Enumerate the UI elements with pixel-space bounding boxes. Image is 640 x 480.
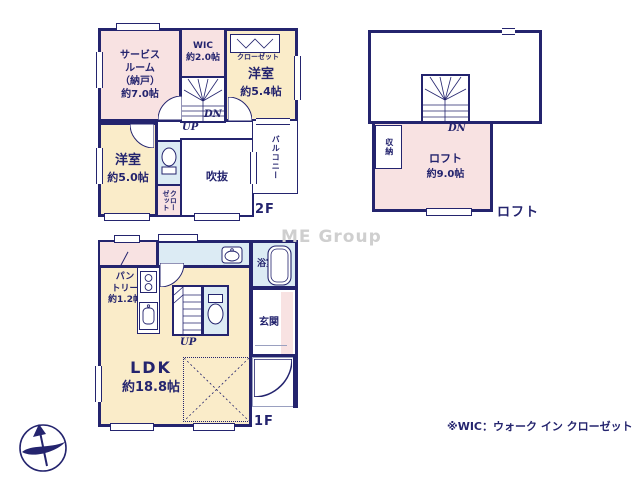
stove-icon	[140, 271, 157, 293]
bay-window	[110, 423, 154, 431]
bay-window	[158, 234, 198, 242]
room-fukinuke-label: 吹抜	[206, 170, 228, 184]
closet-2f-label: クローゼット	[162, 188, 177, 214]
balcony-label: バルコニー	[271, 135, 279, 180]
room-ldk-name: LDK	[130, 358, 172, 379]
window	[502, 28, 515, 35]
room-wic: WIC 約2.0帖	[180, 28, 226, 78]
room-yoshitsu-54-name: 洋室	[248, 67, 274, 84]
window	[95, 366, 102, 402]
bay-window	[104, 213, 150, 221]
stairs-icon	[423, 76, 468, 122]
closet-2f: クローゼット	[156, 184, 182, 217]
room-genkan: 玄関	[250, 287, 298, 357]
bathtub-icon	[267, 245, 292, 286]
floor-1-label: 1F	[254, 414, 274, 429]
stairs-icon	[174, 287, 201, 334]
porch-wall	[293, 355, 298, 408]
bay-window	[194, 213, 240, 221]
front-door-arc	[254, 359, 292, 397]
kitchen-counter	[137, 267, 160, 334]
floorplan-canvas: サービス ルーム （納戸） 約7.0帖 WIC 約2.0帖 クローゼット	[0, 0, 640, 480]
window	[294, 56, 301, 100]
closet-top-label: クローゼット	[233, 53, 283, 62]
washbasin-icon	[221, 246, 243, 264]
door-arc	[130, 124, 154, 148]
stairs-icon	[182, 78, 224, 121]
toilet-2f	[156, 140, 182, 186]
room-fukinuke: 吹抜	[180, 138, 254, 217]
room-yoshitsu-50-name: 洋室	[115, 153, 141, 170]
watermark: ME Group	[281, 227, 382, 247]
room-wic-label: WIC 約2.0帖	[186, 41, 220, 64]
stairs-1f	[172, 285, 203, 336]
room-genkan-label: 玄関	[259, 316, 279, 329]
bay-window	[114, 235, 140, 243]
floor-2-label: 2F	[255, 202, 275, 217]
loft-storage-label: 収納	[384, 138, 392, 156]
wic-footnote: ※WIC：ウォーク イン クローゼット	[447, 418, 633, 434]
bay-window	[426, 208, 472, 216]
window	[256, 118, 290, 125]
loft-floor-label: ロフト	[497, 201, 539, 220]
compass-icon	[16, 420, 72, 476]
room-ldk-size: 約18.8帖	[122, 380, 180, 397]
room-yoshitsu-50-size: 約5.0帖	[107, 171, 149, 185]
pantry-area	[98, 240, 158, 267]
up-label-2f: UP	[182, 122, 198, 133]
window	[96, 148, 103, 184]
bay-window	[193, 423, 235, 431]
balcony: バルコニー	[252, 120, 298, 194]
room-loft-size: 約9.0帖	[427, 168, 465, 181]
door-arc	[160, 263, 184, 287]
toilet-icon	[206, 294, 225, 328]
door-arc	[228, 97, 252, 121]
toilet-icon	[160, 147, 178, 177]
kitchen-sink-icon	[139, 302, 158, 330]
toilet-1f	[202, 285, 229, 336]
open-ceiling-outline	[183, 357, 250, 422]
window	[250, 152, 257, 184]
door-arc	[158, 96, 182, 120]
room-service-label: サービス ルーム （納戸） 約7.0帖	[120, 49, 160, 101]
room-loft-name: ロフト	[429, 152, 462, 166]
stairs-loft	[421, 74, 470, 124]
loft-storage: 収納	[375, 125, 402, 169]
room-yokushitsu: 浴室	[250, 240, 298, 289]
up-label-1f: UP	[180, 337, 196, 348]
window	[96, 52, 103, 88]
bay-window	[116, 23, 160, 31]
dn-label-loft: DN	[448, 123, 466, 134]
stairs-2f	[180, 76, 226, 123]
closet-hatch	[230, 34, 280, 53]
